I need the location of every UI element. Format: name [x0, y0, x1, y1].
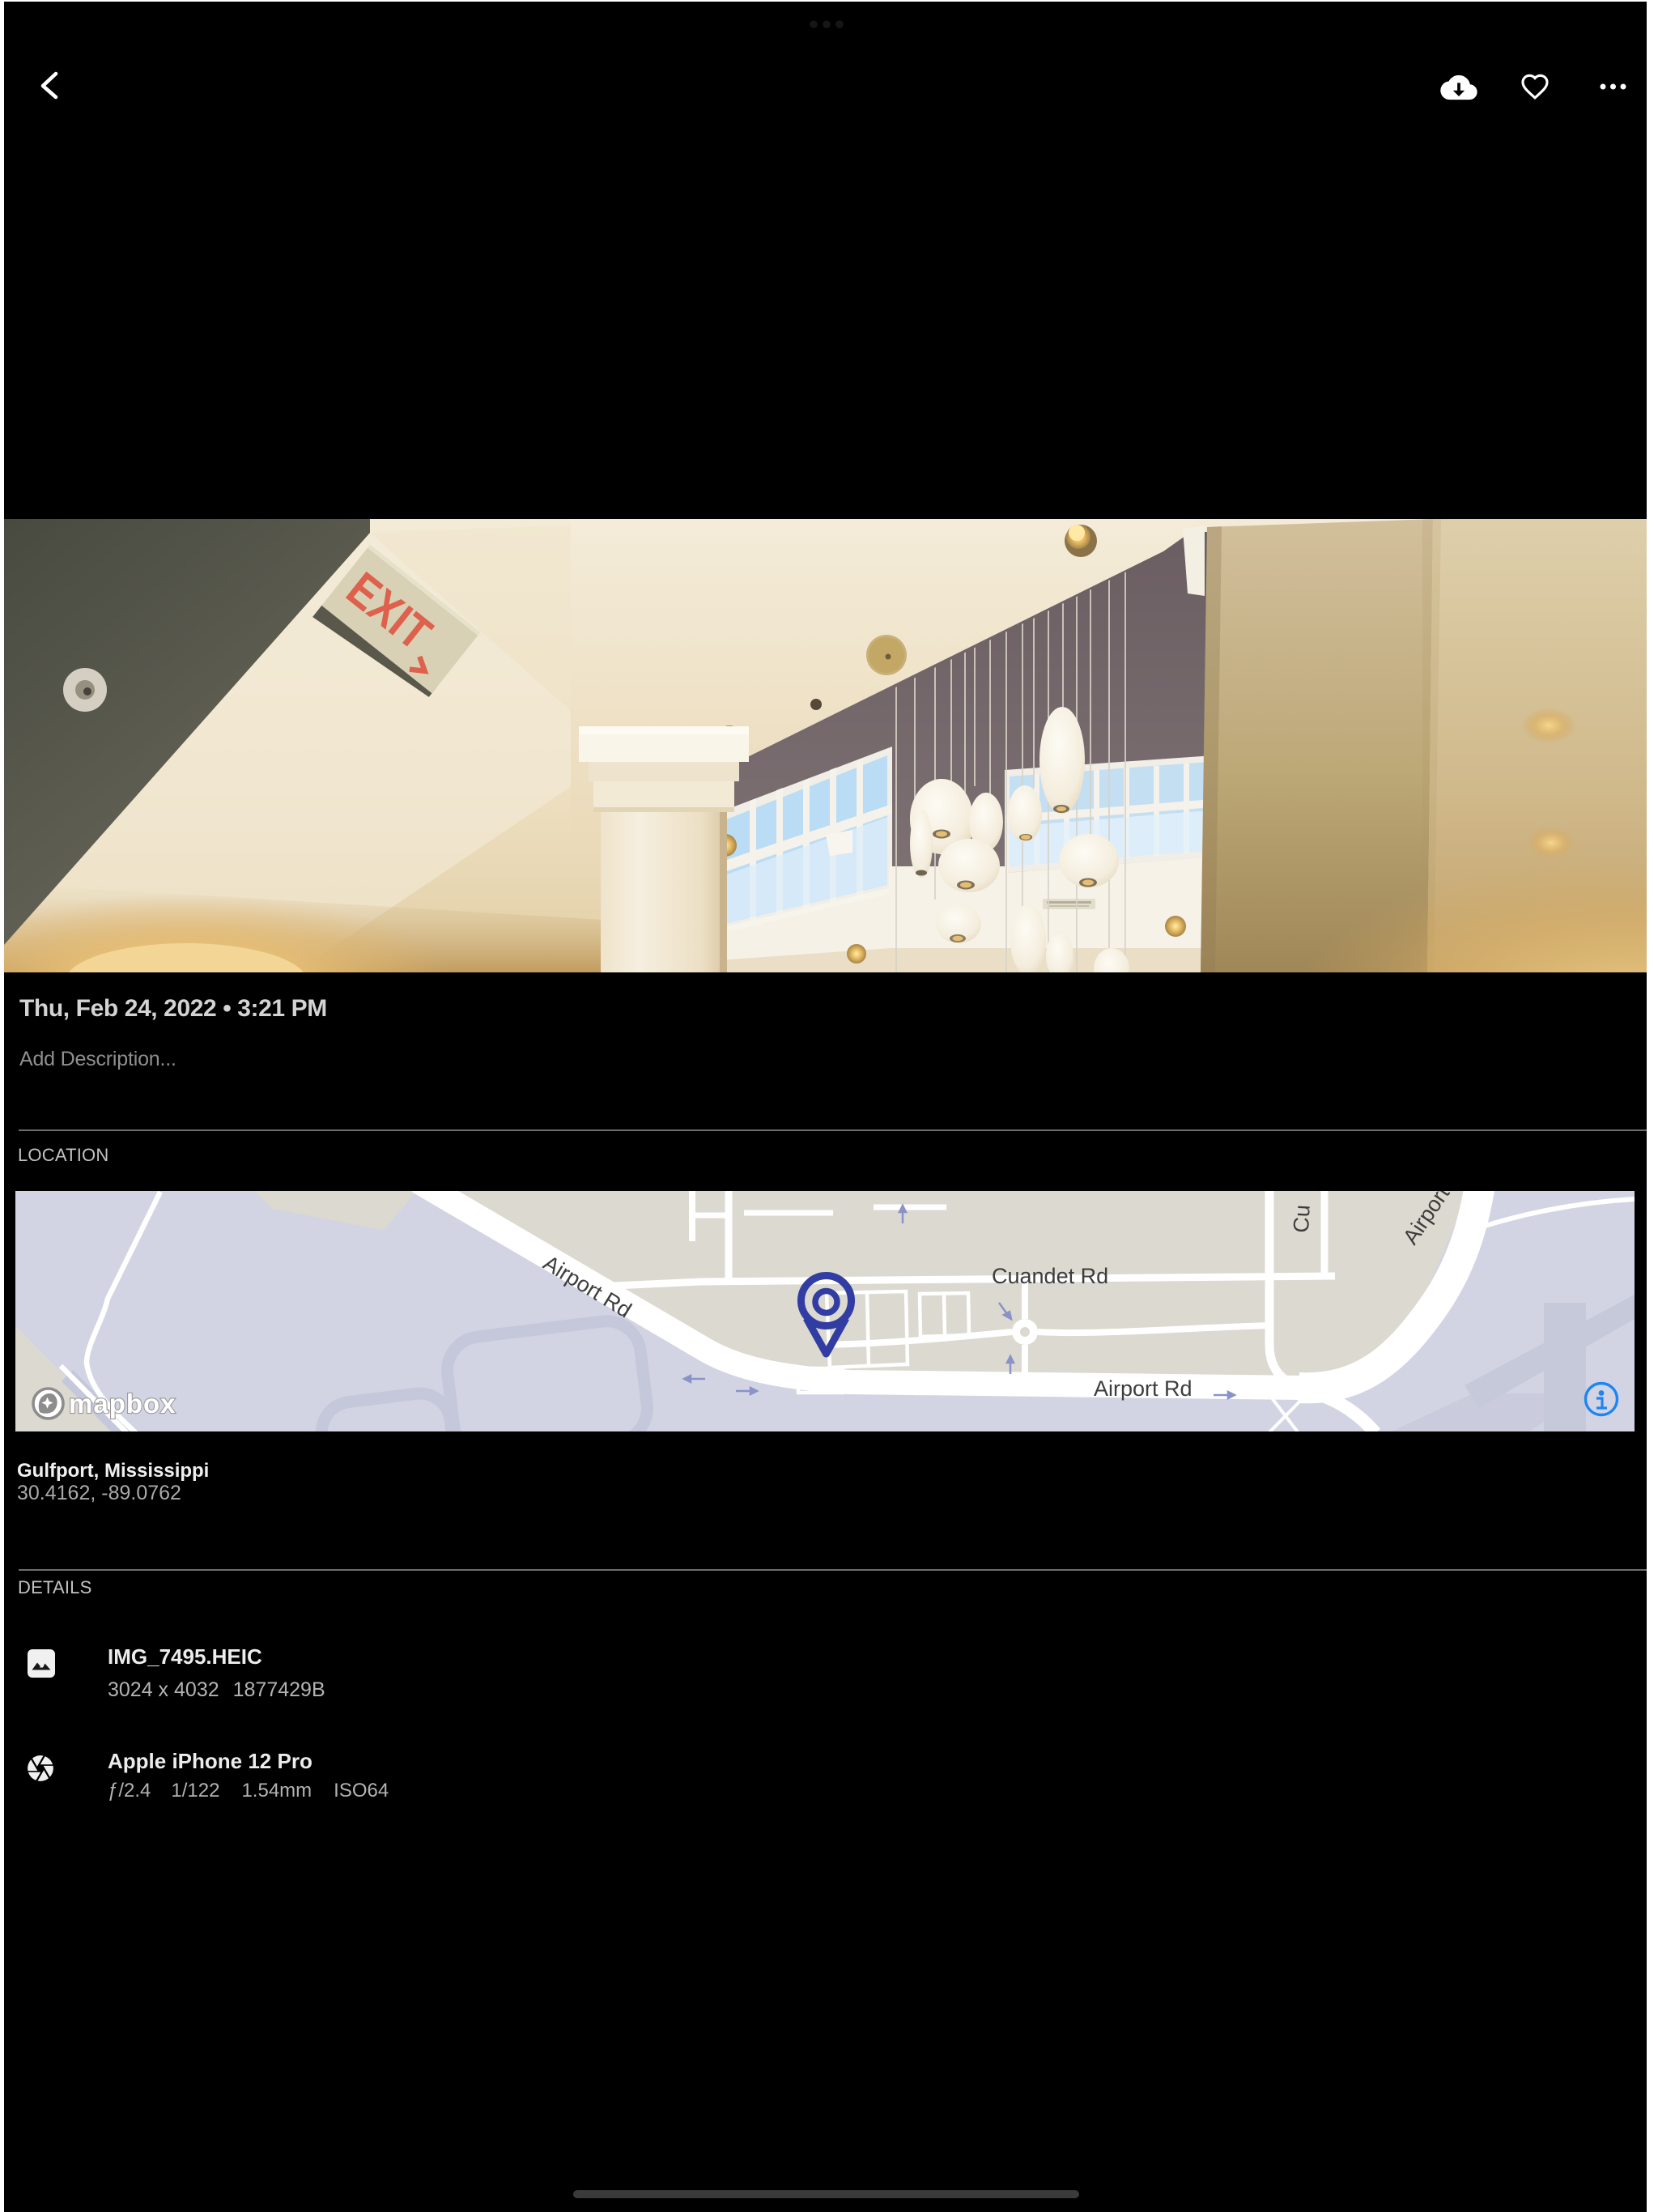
svg-text:Airport Rd: Airport Rd	[1094, 1376, 1192, 1401]
svg-text:Cuandet Rd: Cuandet Rd	[992, 1264, 1108, 1288]
svg-text:mapbox: mapbox	[69, 1389, 176, 1419]
svg-text:Cu: Cu	[1289, 1204, 1315, 1233]
